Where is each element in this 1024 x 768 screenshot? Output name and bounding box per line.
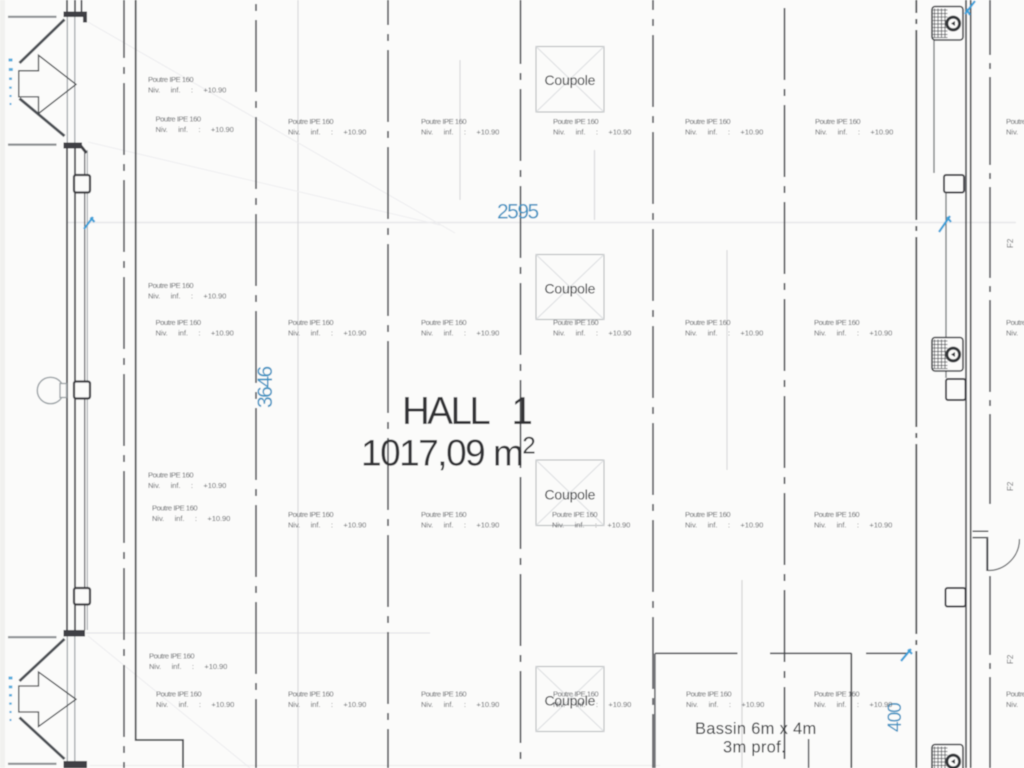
svg-text:Coupole: Coupole — [545, 72, 596, 88]
svg-text:Coupole: Coupole — [545, 281, 596, 297]
svg-text:3646: 3646 — [254, 366, 277, 408]
svg-text:F2: F2 — [1006, 238, 1015, 248]
svg-text:2595: 2595 — [497, 201, 539, 224]
svg-text:HALL: HALL — [402, 390, 490, 433]
svg-text:3m prof.: 3m prof. — [723, 739, 786, 757]
svg-text:Bassin 6m x 4m: Bassin 6m x 4m — [695, 720, 817, 738]
svg-text:1: 1 — [512, 390, 533, 433]
svg-text:F2: F2 — [1006, 654, 1015, 664]
svg-text:1017,09 m2: 1017,09 m2 — [361, 433, 535, 474]
svg-text:F2: F2 — [1006, 481, 1015, 491]
svg-text:Coupole: Coupole — [545, 487, 596, 503]
